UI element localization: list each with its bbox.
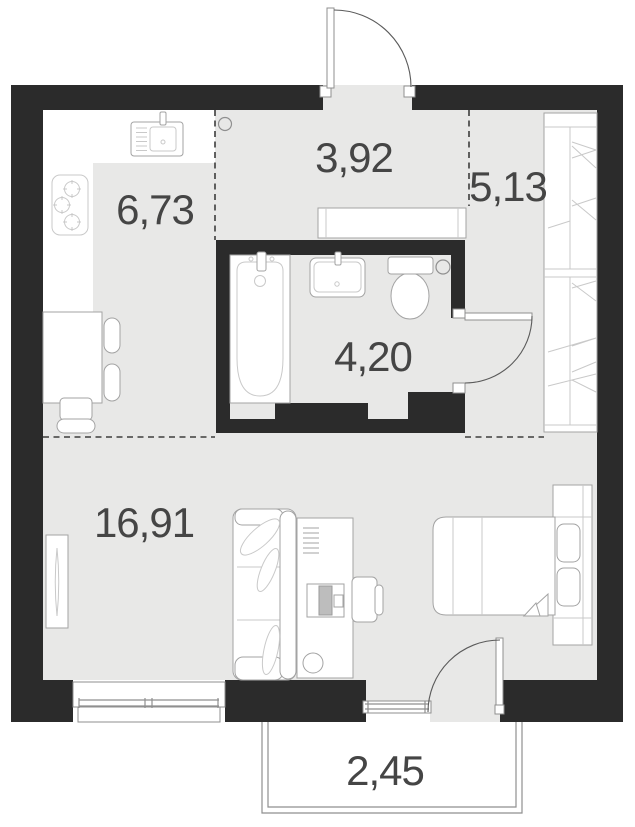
floor-plan-drawing — [0, 0, 635, 827]
chair-icon — [57, 419, 95, 433]
entrance-door-swing-icon — [320, 8, 415, 97]
chair-icon — [104, 318, 120, 353]
hallway-shelf-icon — [318, 208, 466, 238]
washbasin-icon — [310, 252, 365, 297]
chair-icon — [104, 364, 120, 401]
dining-table-icon — [43, 312, 102, 403]
balcony-window-icon — [363, 701, 431, 713]
window-icon — [73, 682, 225, 722]
room-label-balcony: 2,45 — [346, 747, 424, 795]
room-label-dressing: 5,13 — [469, 163, 547, 211]
floor-plan: 6,73 3,92 5,13 4,20 16,91 2,45 — [0, 0, 635, 827]
stove-icon — [52, 175, 88, 235]
room-label-hallway: 3,92 — [315, 134, 393, 182]
stool-icon — [303, 653, 323, 673]
bathtub-icon — [230, 252, 290, 403]
room-label-kitchen: 6,73 — [116, 186, 194, 234]
chair-icon — [60, 398, 92, 420]
computer-icon — [307, 584, 344, 617]
wardrobe-icon — [544, 113, 597, 432]
tv-icon — [46, 535, 68, 628]
room-label-living-room: 16,91 — [94, 499, 194, 547]
sofa-icon — [233, 509, 296, 680]
room-label-bathroom: 4,20 — [334, 333, 412, 381]
